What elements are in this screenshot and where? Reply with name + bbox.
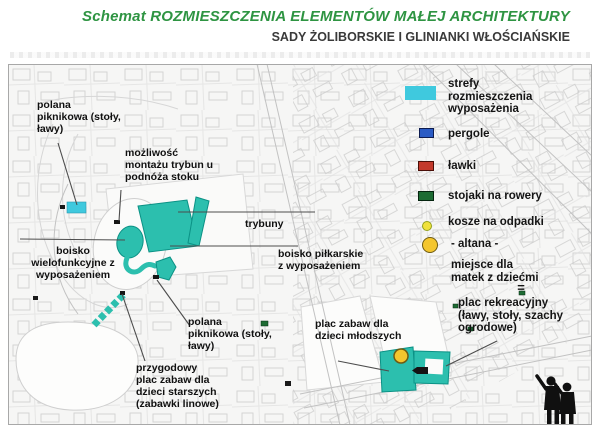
marker-picnic-s: [153, 275, 159, 279]
label-grandstand-option: możliwość montażu trybun u podnóża stoku: [125, 148, 245, 184]
slide: Schemat ROZMIESZCZENIA ELEMENTÓW MAŁEJ A…: [0, 0, 600, 432]
label-multifunction-court: boisko wielofunkcyjne z wyposażeniem: [8, 246, 138, 282]
page-subtitle: SADY ŻOLIBORSKIE I GLINIANKI WŁOŚCIAŃSKI…: [60, 30, 570, 44]
pond-area: [16, 322, 138, 410]
legend-zone-label: strefy rozmieszczenia wyposażenia: [448, 78, 532, 116]
label-picnic-meadow-s: polana piknikowa (stoły, ławy): [188, 317, 293, 353]
label-football-field: boisko piłkarskie z wyposażeniem: [278, 249, 398, 273]
legend-bench-swatch: [418, 161, 434, 171]
label-picnic-meadow-nw: polana piknikowa (stoły, ławy): [37, 100, 137, 136]
marker-dark-1: [285, 381, 291, 386]
legend-pergola-label: pergole: [448, 128, 490, 141]
gazebo-dot: [394, 349, 408, 363]
legend-gazebo-swatch: [421, 236, 439, 254]
legend-bin-swatch: [421, 220, 433, 232]
label-rope-playground: przygodowy plac zabaw dla dzieci starszy…: [136, 363, 246, 411]
legend-bike-rack-label: stojaki na rowery: [448, 190, 542, 203]
football-field-zone: [138, 200, 198, 252]
legend-recreation-label: plac rekreacyjny (ławy, stoły, szachy og…: [458, 297, 563, 335]
marker-dark-2: [33, 296, 38, 300]
legend-equals-sign: =: [512, 281, 530, 295]
legend-bench-label: ławki: [448, 160, 476, 173]
label-grandstands: trybuny: [245, 219, 284, 231]
legend-gazebo-label: - altana -: [451, 238, 498, 251]
legend-bin-label: kosze na odpadki: [448, 216, 544, 229]
legend-pergola-swatch: [419, 128, 434, 138]
label-toddler-playground: plac zabaw dla dzieci młodszych: [315, 319, 430, 343]
marker-picnic-nw: [60, 205, 65, 209]
page-title: Schemat ROZMIESZCZENIA ELEMENTÓW MAŁEJ A…: [60, 8, 570, 25]
legend-zone-swatch: [405, 86, 436, 100]
texture-strip: [10, 52, 590, 58]
legend-bike-rack-swatch: [418, 191, 434, 201]
